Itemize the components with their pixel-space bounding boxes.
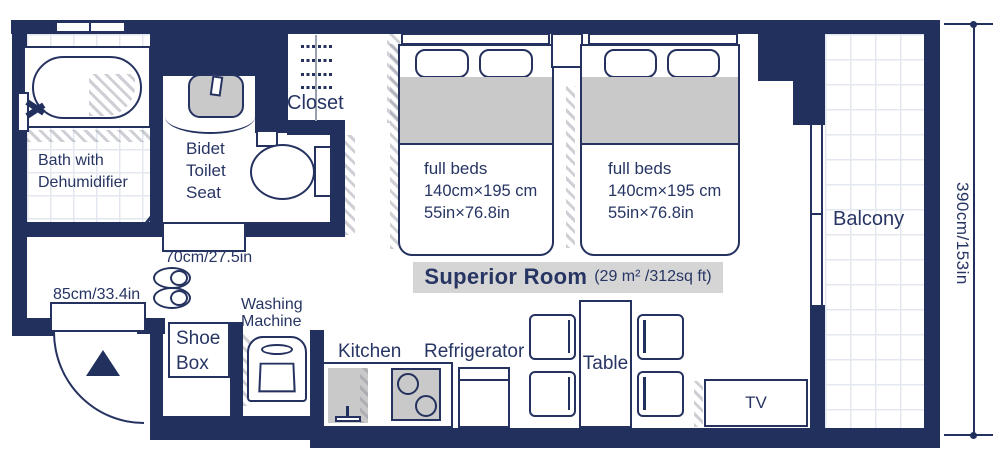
entrance-door-swing — [53, 332, 144, 424]
washing-machine-label: Washing Machine — [241, 296, 303, 330]
bed2-pillow — [667, 49, 720, 78]
bath-label: Bath with Dehumidifier — [38, 150, 128, 194]
chair — [637, 371, 684, 417]
bed2-label: full beds 140cm×195 cm 55in×76.8in — [608, 158, 721, 224]
wall-shoebox-right — [230, 322, 243, 428]
bath-floor-shadow — [27, 130, 150, 142]
chair — [529, 314, 576, 360]
entrance-marker-triangle — [86, 350, 120, 376]
bathtub-shading — [89, 74, 135, 116]
tv-label: TV — [745, 392, 767, 414]
closet-hanger-dots — [301, 59, 334, 62]
wall-sink-closet — [255, 34, 288, 133]
wall-right-balcony — [924, 22, 940, 448]
bed1-label: full beds 140cm×195 cm 55in×76.8in — [424, 158, 537, 224]
wall-top — [11, 20, 940, 34]
wall-toilet-right — [330, 133, 345, 237]
bed2-pillow — [604, 49, 657, 78]
refrigerator-label: Refrigerator — [424, 340, 524, 365]
wall-balcony-block-top — [758, 34, 825, 81]
table-label: Table — [579, 352, 632, 377]
toilet-label: Bidet Toilet Seat — [186, 138, 226, 204]
bed1-duvet — [400, 77, 552, 145]
dimension-dot — [970, 21, 977, 28]
wall-entrance-corner — [12, 318, 54, 336]
wall-corridor-right — [150, 320, 163, 426]
entrance-door-leaf — [50, 302, 146, 332]
room-title-band: Superior Room (29 m² /312sq ft) — [413, 262, 723, 293]
room-area: (29 m² /312sq ft) — [594, 267, 711, 288]
kitchen-sink-icon — [328, 368, 368, 423]
bed1-shading — [390, 44, 398, 249]
dimension-ext-bottom — [944, 434, 993, 436]
balcony-label: Balcony — [833, 206, 904, 232]
closet-hanger-dots — [301, 45, 334, 48]
closet-label: Closet — [287, 90, 344, 116]
bath-window — [55, 21, 126, 33]
closet-hanger-dots — [301, 86, 334, 89]
stove-icon — [391, 368, 441, 421]
balcony-glass-door-joint — [812, 213, 821, 215]
room-depth-label: 390cm/153in — [952, 182, 972, 285]
wall-balcony-block-bottom — [810, 305, 825, 428]
stove-burner — [397, 373, 419, 395]
floor-plan: Bath with Dehumidifier Bidet Toilet Seat… — [0, 0, 1000, 454]
bath-faucet-icon — [27, 97, 51, 123]
wall-bath-right — [150, 34, 163, 225]
wall-above-sink — [163, 34, 255, 76]
chair — [529, 371, 576, 417]
bath-window-mullion — [89, 23, 91, 31]
bed2-duvet — [582, 77, 738, 145]
washing-machine-icon — [247, 336, 307, 402]
dimension-ext-top — [944, 23, 993, 25]
wall-balcony-block-mid — [793, 81, 825, 125]
refrigerator-box — [458, 367, 510, 428]
closet-hanger-dots — [301, 73, 334, 76]
toilet-tank — [314, 146, 332, 197]
room-title: Superior Room — [424, 263, 587, 292]
bed1-pillow — [415, 49, 469, 78]
tv-shading — [694, 381, 703, 427]
chair — [637, 314, 684, 360]
dimension-line — [973, 24, 975, 436]
toilet-icon — [250, 144, 315, 200]
toilet-door-width-label: 70cm/27.5in — [165, 248, 252, 269]
bed2-shading — [566, 86, 575, 248]
bed1-pillow — [479, 49, 533, 78]
nightstand — [551, 33, 583, 68]
toilet-wall-shading — [345, 135, 355, 235]
shoe-box: Shoe Box — [168, 322, 230, 378]
slippers-icon — [153, 267, 193, 311]
stove-burner — [415, 395, 437, 417]
dimension-dot — [970, 432, 977, 439]
wall-bottom — [310, 428, 940, 448]
balcony-glass-door — [810, 125, 823, 305]
tv-box: TV — [704, 379, 808, 427]
kitchen-label: Kitchen — [338, 340, 401, 365]
